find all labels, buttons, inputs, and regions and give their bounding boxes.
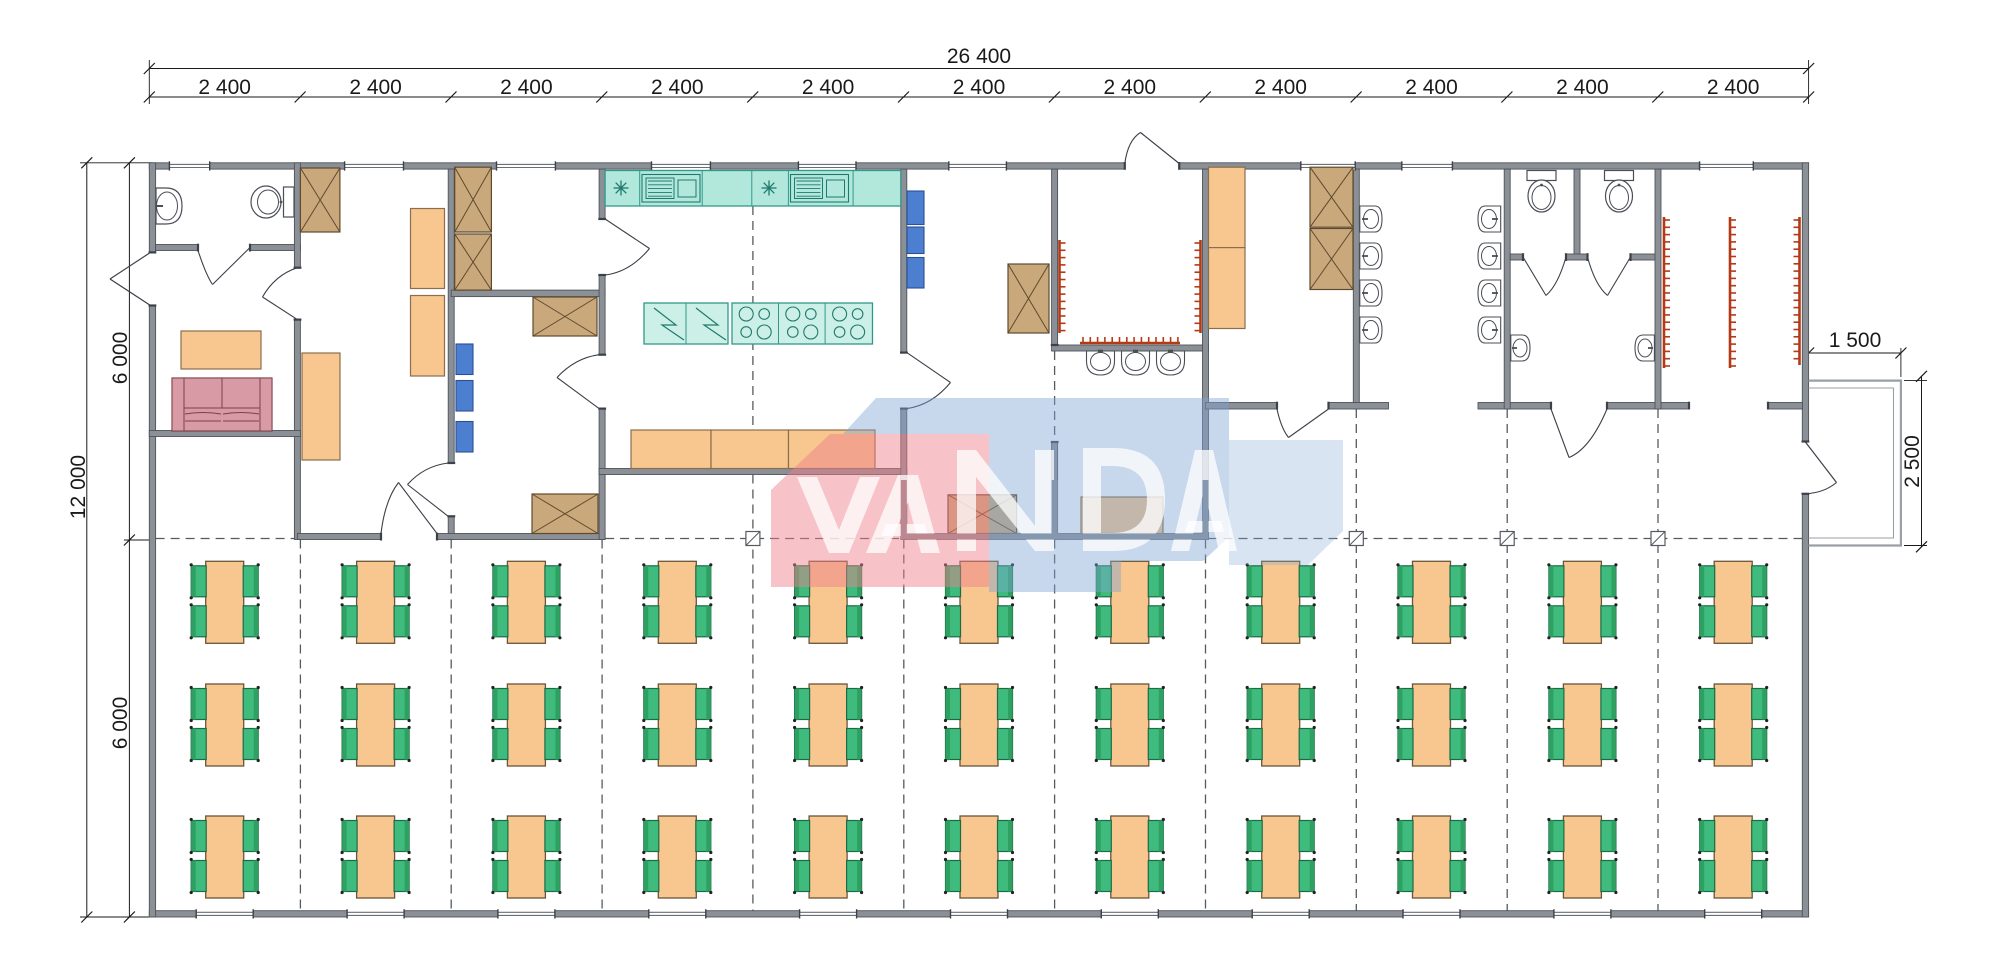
svg-text:2 400: 2 400	[651, 76, 704, 99]
svg-text:1 500: 1 500	[1829, 329, 1882, 352]
svg-text:2 400: 2 400	[1556, 76, 1609, 99]
svg-text:2 400: 2 400	[198, 76, 251, 99]
svg-text:2 400: 2 400	[1104, 76, 1157, 99]
svg-text:26 400: 26 400	[947, 45, 1011, 68]
svg-text:12 000: 12 000	[67, 455, 90, 519]
svg-text:2 400: 2 400	[1254, 76, 1307, 99]
svg-text:6 000: 6 000	[109, 332, 132, 385]
svg-text:2 400: 2 400	[500, 76, 553, 99]
svg-text:2 400: 2 400	[802, 76, 855, 99]
svg-text:2 400: 2 400	[1405, 76, 1458, 99]
svg-text:2 400: 2 400	[349, 76, 402, 99]
svg-text:6 000: 6 000	[109, 697, 132, 750]
svg-text:2 500: 2 500	[1901, 435, 1924, 488]
svg-text:2 400: 2 400	[1707, 76, 1760, 99]
svg-text:2 400: 2 400	[953, 76, 1006, 99]
